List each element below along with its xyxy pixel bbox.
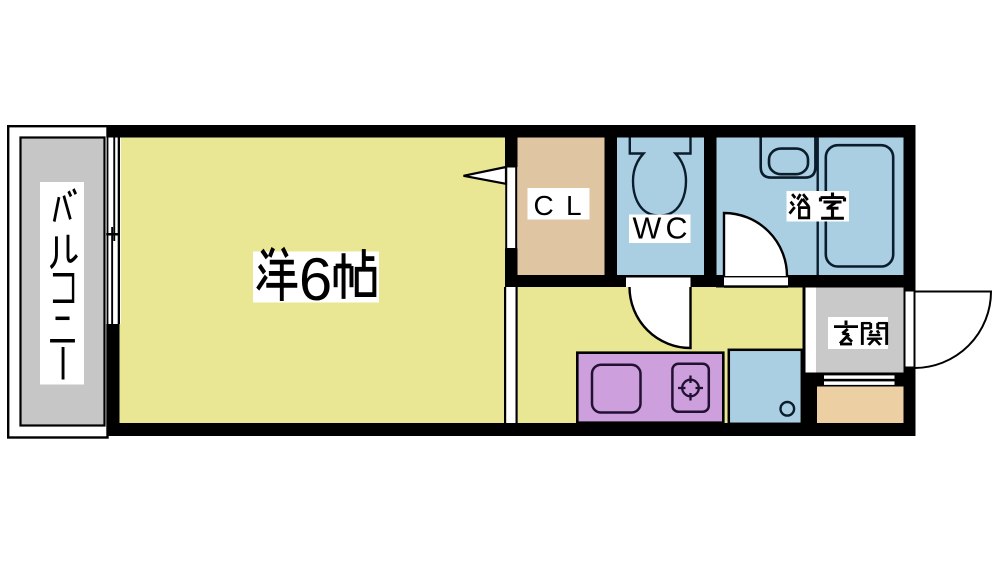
svg-text:6: 6 [299, 246, 332, 313]
svg-text:C: C [666, 212, 688, 246]
svg-text:C: C [534, 190, 554, 221]
svg-text:W: W [633, 212, 662, 246]
svg-text:L: L [566, 190, 582, 221]
